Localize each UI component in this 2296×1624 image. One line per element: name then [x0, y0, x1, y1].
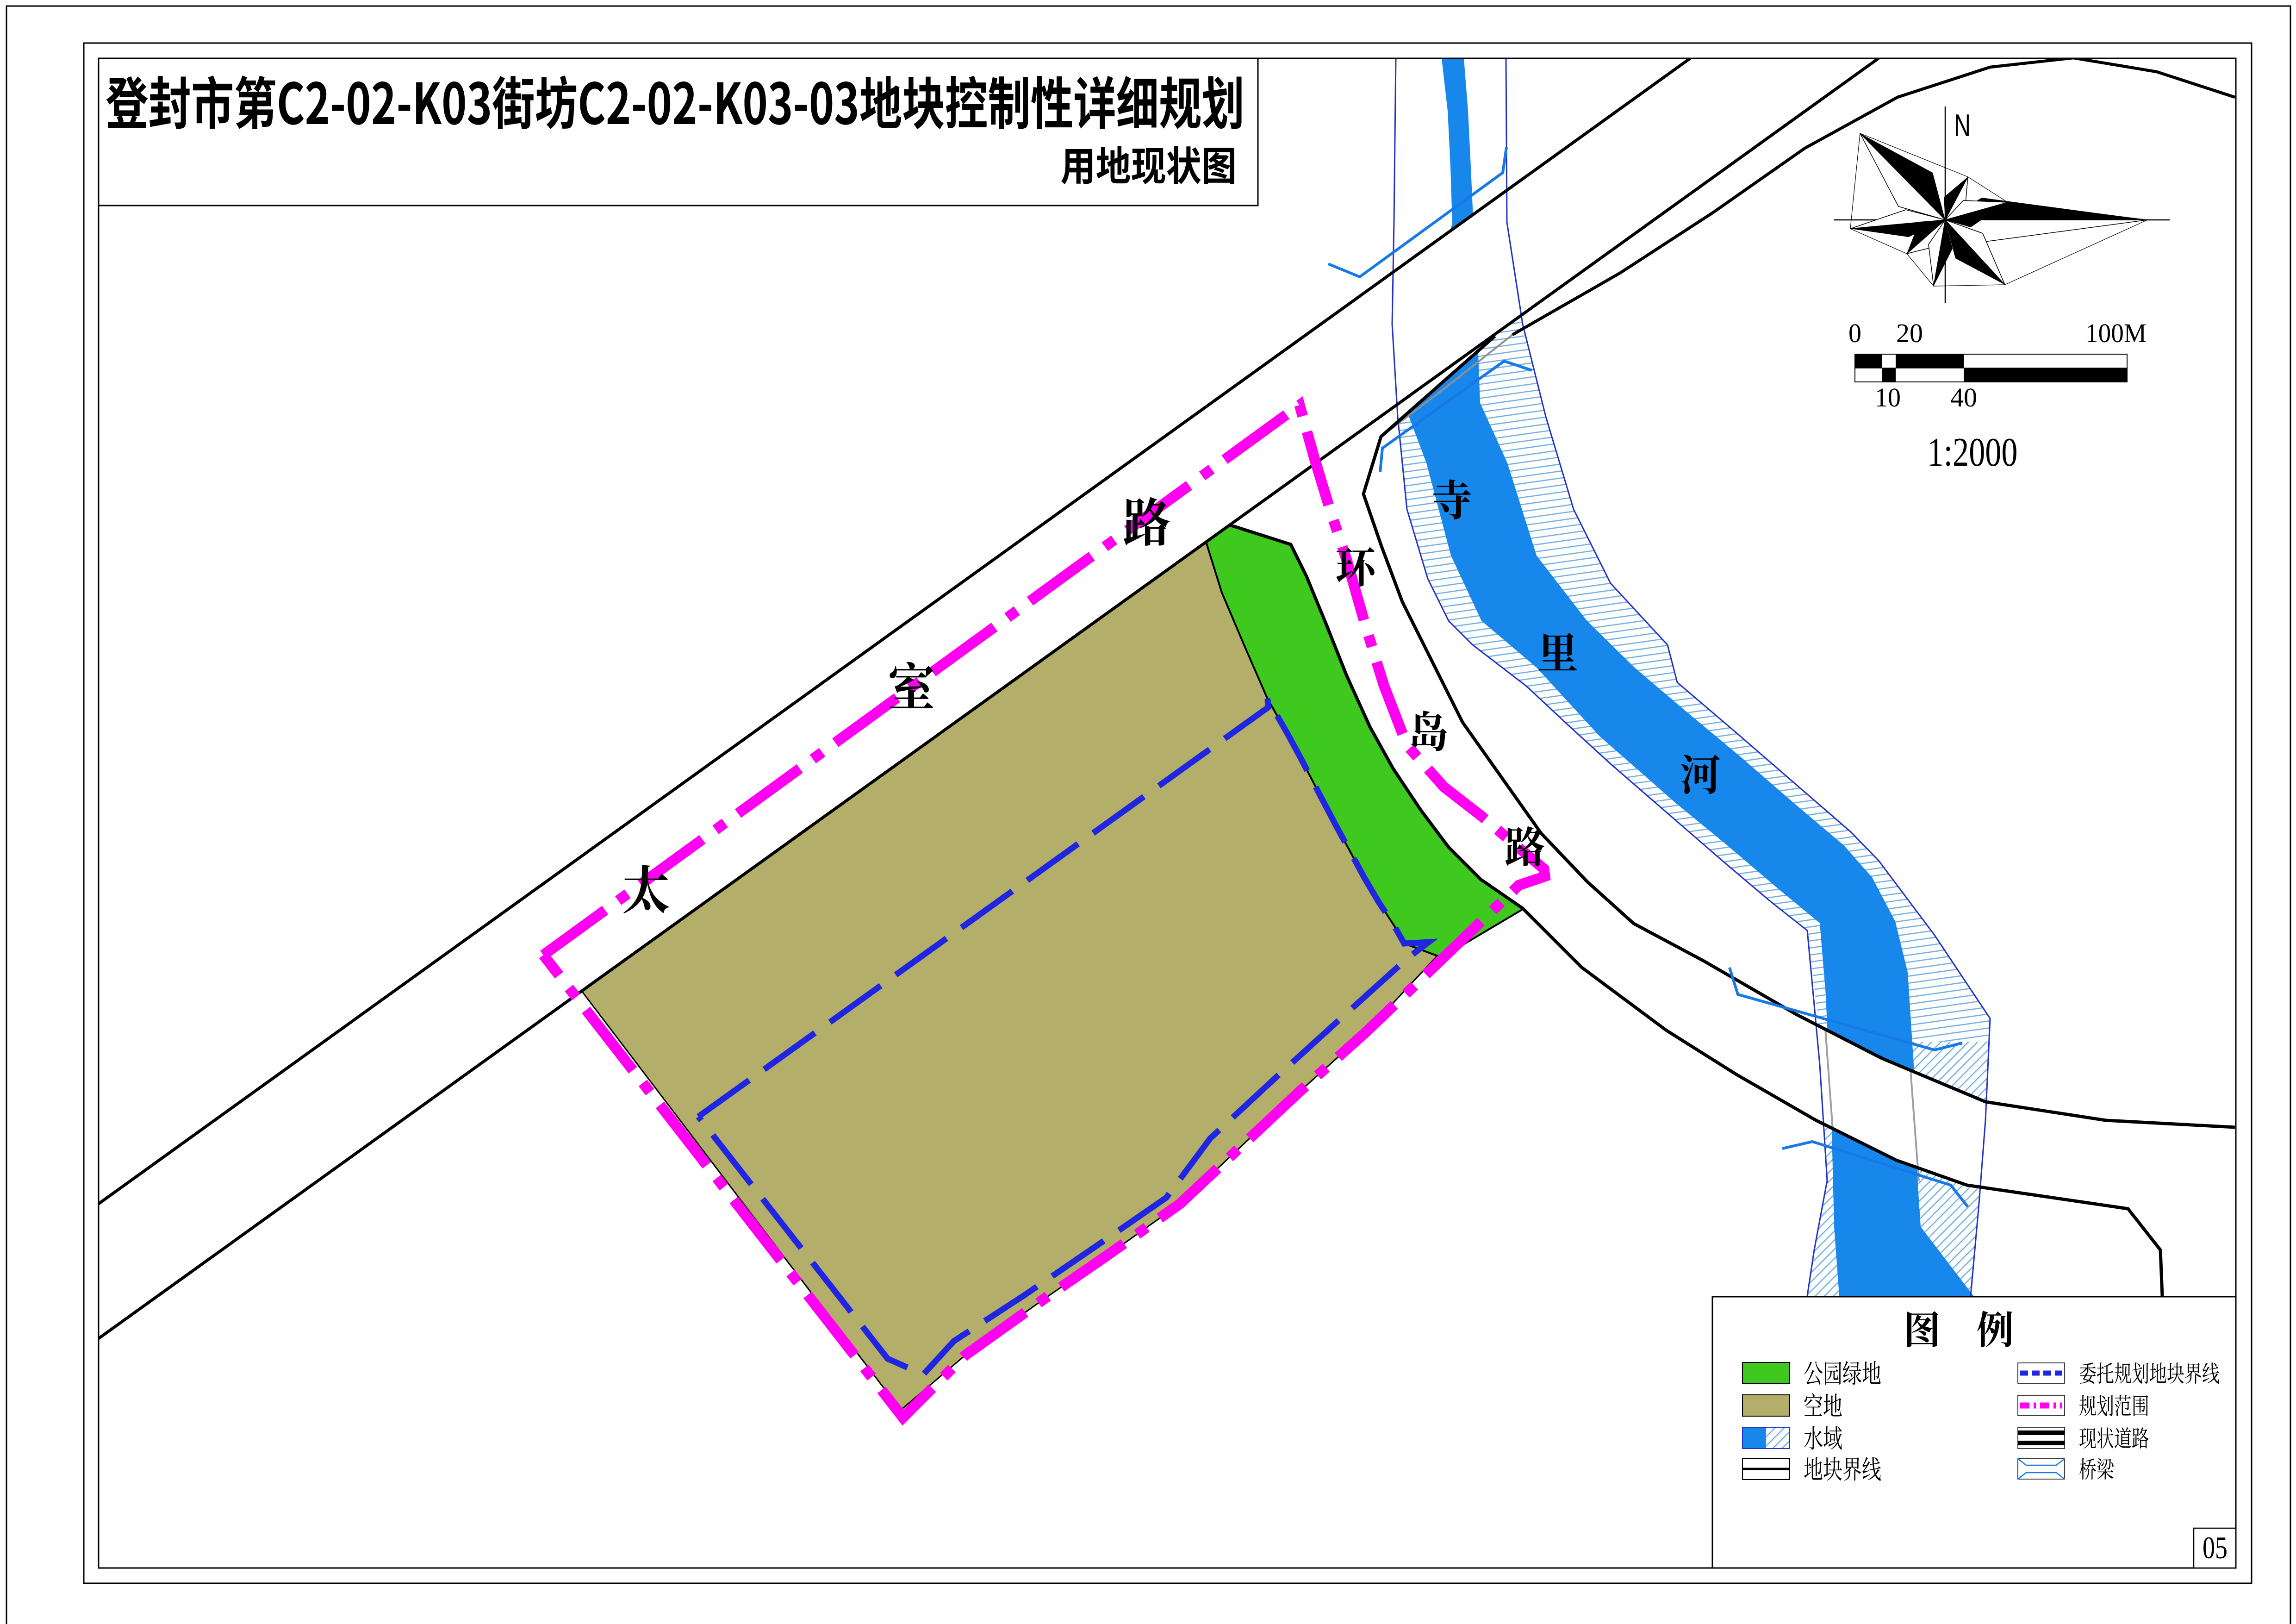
svg-text:1:2000: 1:2000	[1928, 430, 2018, 475]
svg-text:100M: 100M	[2085, 318, 2147, 348]
svg-text:10: 10	[1875, 382, 1901, 412]
svg-text:N: N	[1954, 108, 1971, 143]
svg-text:05: 05	[2203, 1530, 2228, 1565]
svg-text:0: 0	[1848, 318, 1861, 348]
svg-text:40: 40	[1950, 382, 1977, 412]
svg-text:20: 20	[1896, 318, 1923, 348]
